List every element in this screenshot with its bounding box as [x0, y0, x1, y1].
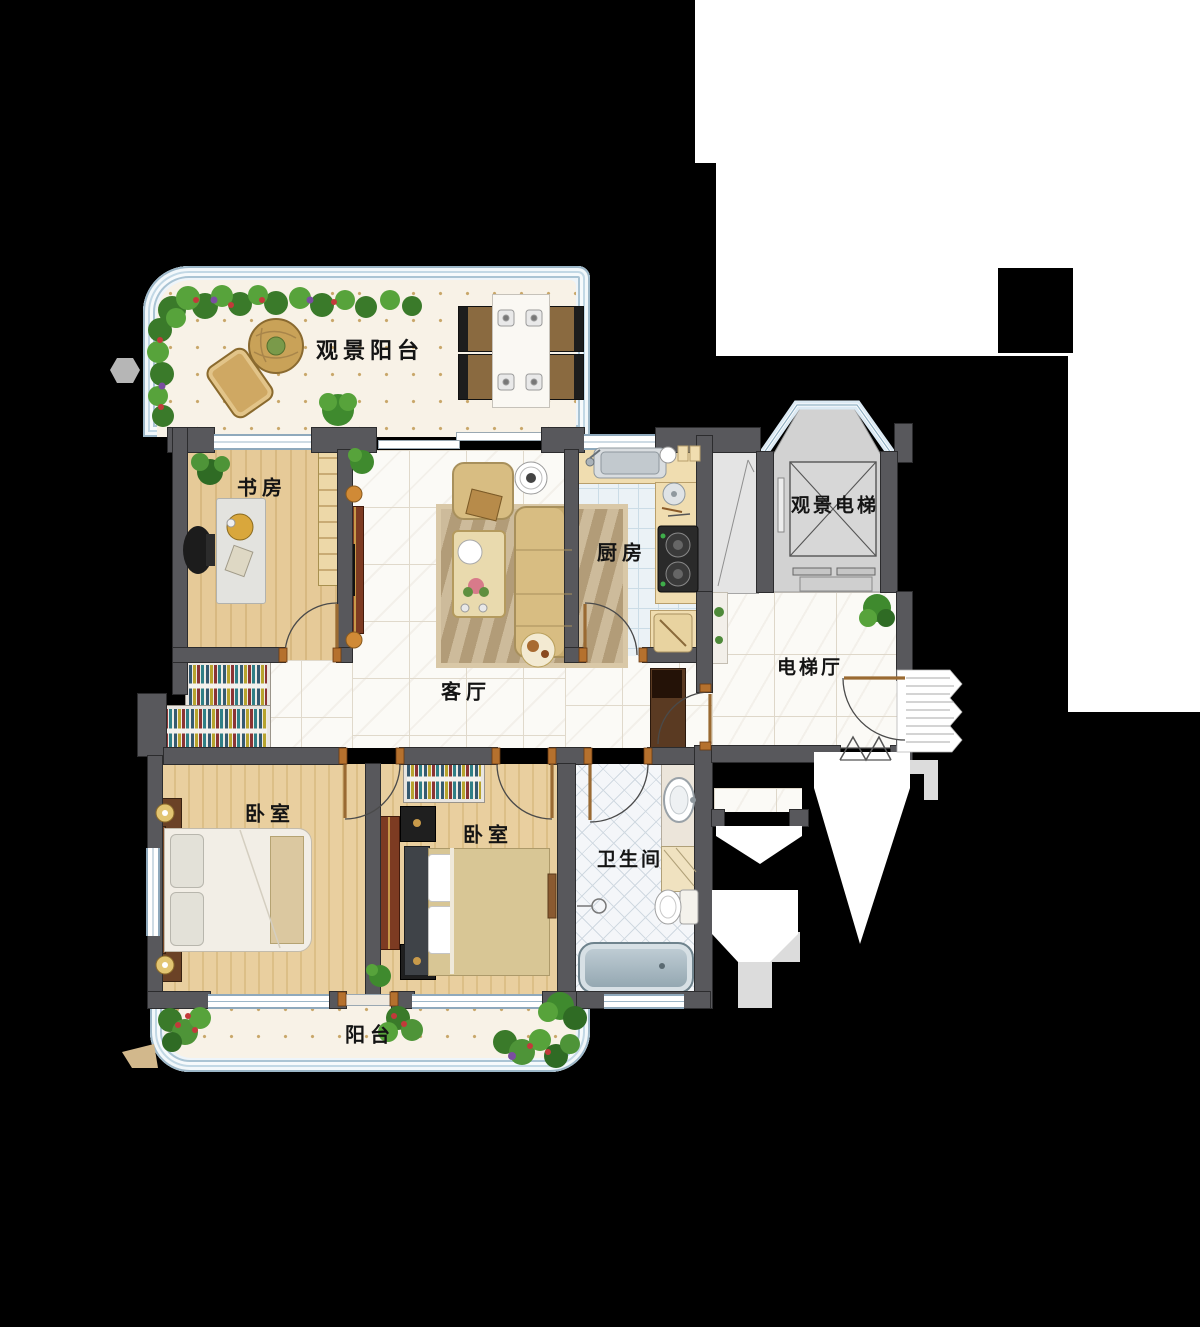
wall — [643, 648, 697, 662]
mask-top-right — [695, 0, 1200, 163]
wall — [790, 810, 808, 826]
pillow — [428, 906, 454, 954]
mask-right-column — [1068, 356, 1200, 712]
wall — [695, 746, 712, 1008]
balcony-dining-table — [492, 294, 550, 408]
break-band — [738, 962, 772, 1008]
pillow — [170, 892, 204, 946]
bathroom-window — [604, 994, 684, 1009]
wall — [897, 592, 912, 680]
wall — [895, 424, 912, 462]
label-bedroom-main: 卧室 — [245, 798, 295, 827]
study-window — [214, 434, 312, 450]
balcony-door — [344, 994, 396, 1006]
sliding-door-leaf — [378, 440, 460, 449]
wall — [400, 748, 497, 764]
label-elevator: 观景电梯 — [791, 491, 879, 518]
tv-panel — [378, 816, 400, 950]
study-desk — [216, 498, 266, 604]
label-living: 客厅 — [441, 676, 491, 705]
wall — [881, 452, 897, 592]
break-band — [738, 932, 800, 962]
wall — [712, 746, 840, 762]
label-bathroom: 卫生间 — [597, 845, 663, 872]
deco-screen — [712, 592, 728, 664]
sliding-door-leaf — [456, 432, 544, 441]
label-view-balcony: 观景阳台 — [316, 333, 424, 365]
label-balcony: 阳台 — [345, 1019, 395, 1048]
cabinet-black — [400, 806, 436, 842]
label-bedroom-second: 卧室 — [463, 819, 513, 848]
bedroom-window — [208, 994, 332, 1009]
kitchen-counter-side — [655, 482, 700, 604]
wall — [565, 648, 585, 662]
pillow — [170, 834, 204, 888]
bookshelf — [186, 662, 270, 710]
kitchen-window — [584, 434, 656, 450]
utility-panel — [712, 450, 759, 594]
wall — [543, 992, 577, 1008]
balcony-chair — [546, 306, 584, 352]
wall — [697, 436, 712, 596]
wall — [565, 450, 578, 660]
wall — [697, 592, 712, 692]
wall — [173, 648, 285, 662]
wall — [148, 992, 210, 1008]
wall — [312, 428, 376, 452]
pillow — [428, 854, 454, 902]
hall-floor-fragment — [714, 788, 802, 812]
wall — [558, 764, 575, 996]
wall — [338, 450, 352, 660]
balcony-chair — [458, 306, 496, 352]
label-kitchen: 厨房 — [597, 537, 647, 566]
shower — [661, 846, 699, 892]
balcony-chair — [458, 354, 496, 400]
break-arrow — [814, 752, 910, 944]
bedroom-window — [412, 994, 545, 1009]
break-band — [900, 760, 938, 774]
bed-headboard-dark — [404, 846, 430, 976]
wall — [164, 748, 345, 764]
bedroom-window-left — [146, 848, 160, 936]
coffee-table — [452, 530, 506, 618]
wall — [542, 428, 584, 452]
label-study: 书房 — [237, 472, 287, 501]
wall — [550, 748, 590, 764]
wall — [392, 992, 414, 1008]
hexagon-marker — [110, 358, 140, 383]
bathtub — [578, 942, 694, 994]
shaft-cutout — [998, 268, 1073, 353]
wall — [337, 648, 352, 662]
wall — [757, 452, 773, 592]
floor-plan: 观景阳台 书房 客厅 厨房 观景电梯 电梯厅 卧室 卧室 卫生间 阳台 — [0, 0, 1200, 1327]
label-elevator-hall: 电梯厅 — [777, 653, 843, 680]
bed-throw — [270, 836, 304, 944]
entry-mat-dark — [652, 670, 682, 698]
balcony-chair — [546, 354, 584, 400]
bath-counter — [661, 758, 699, 848]
wall — [138, 694, 166, 756]
wall — [712, 810, 724, 826]
wall — [366, 764, 380, 996]
hall-door-gap — [897, 680, 912, 740]
break-chevron — [716, 826, 802, 864]
break-band — [924, 774, 938, 800]
mask-top-right-2 — [716, 163, 1200, 356]
